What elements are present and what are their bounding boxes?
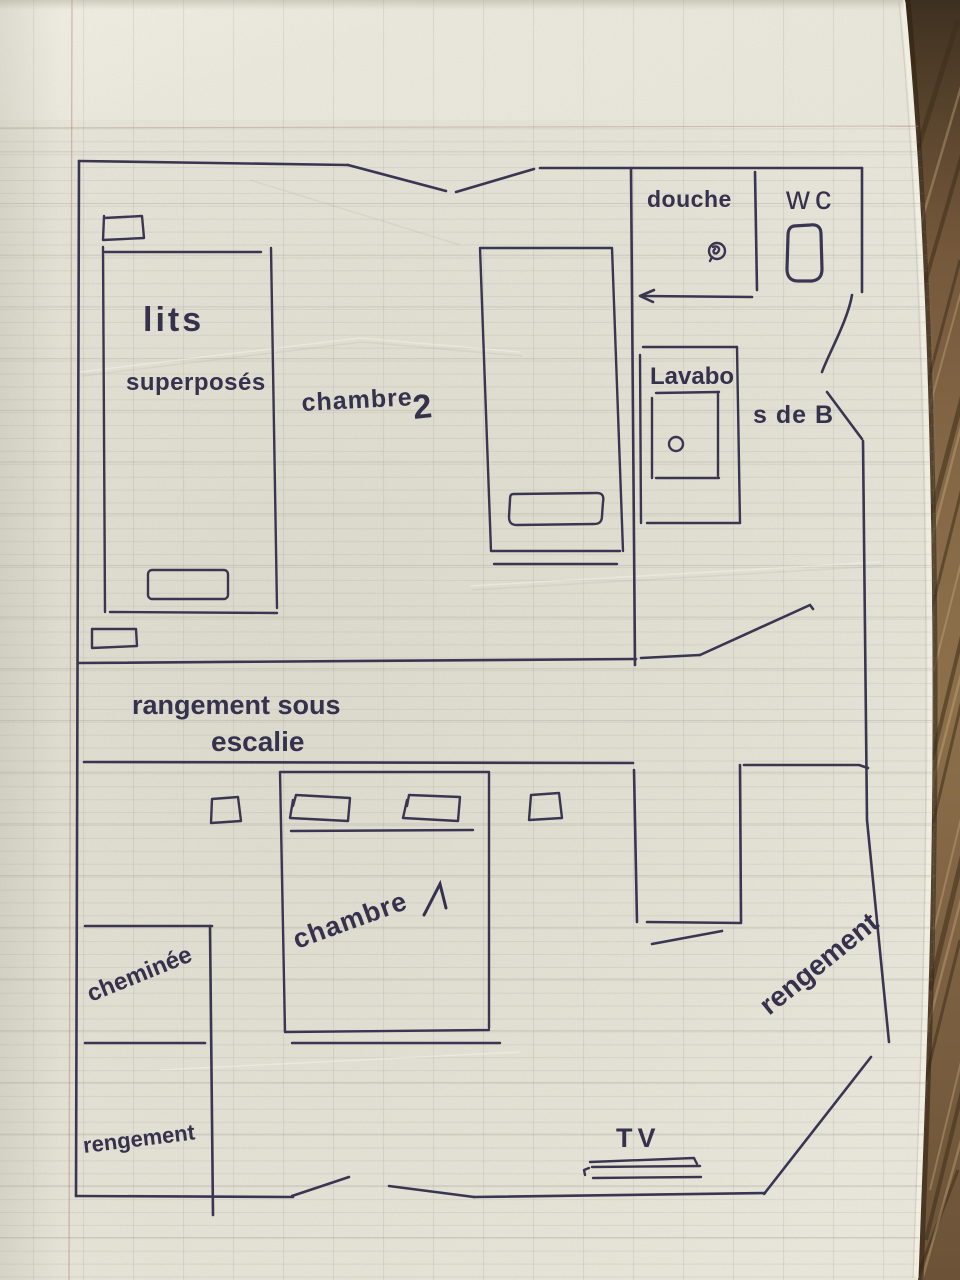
svg-text:lits: lits xyxy=(143,301,204,339)
svg-text:escalie: escalie xyxy=(211,726,304,757)
svg-text:superposés: superposés xyxy=(126,369,266,396)
svg-text:2: 2 xyxy=(411,387,434,427)
svg-text:douche: douche xyxy=(647,186,732,212)
svg-text:TV: TV xyxy=(616,1123,661,1153)
svg-text:rangement sous: rangement sous xyxy=(132,690,341,720)
svg-text:wc: wc xyxy=(785,179,836,216)
svg-text:Lavabo: Lavabo xyxy=(650,363,734,390)
svg-text:s de B: s de B xyxy=(753,401,834,429)
svg-text:chambre: chambre xyxy=(301,383,414,417)
